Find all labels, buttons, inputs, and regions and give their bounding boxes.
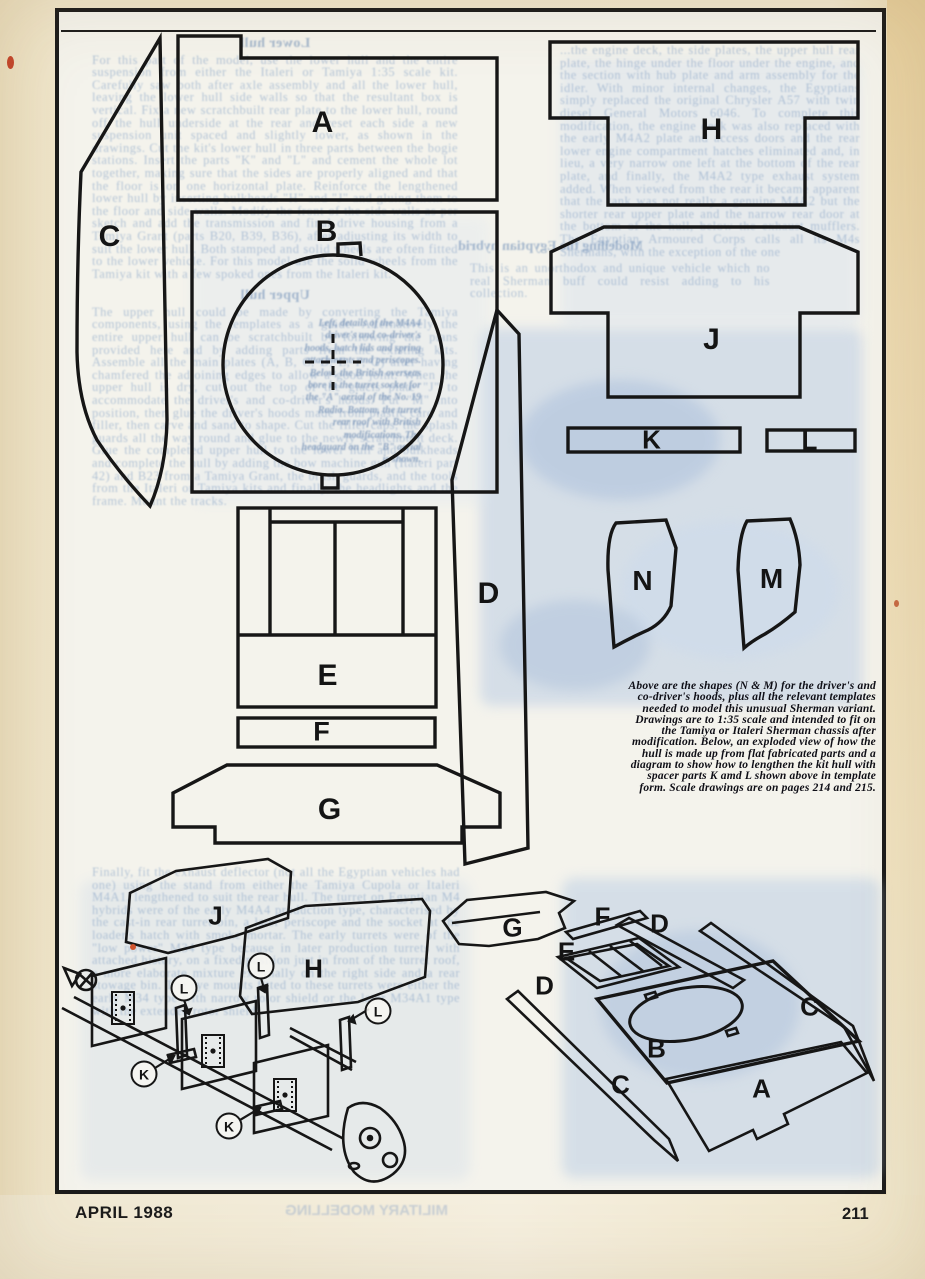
magazine-page: Lower hull For this part of the model, u… — [0, 0, 925, 1279]
diagram-right-label-c2: C — [611, 1070, 631, 1101]
hull-nose-piece — [343, 1103, 405, 1182]
ink-speck — [7, 56, 14, 69]
template-shape-c — [77, 38, 167, 506]
circled-label-l: L — [248, 953, 275, 980]
template-label-k: K — [642, 425, 662, 456]
template-label-c: C — [99, 220, 122, 254]
circled-label-k: K — [216, 1113, 243, 1140]
circled-label-k: K — [131, 1061, 158, 1088]
template-label-e: E — [317, 659, 338, 693]
diagram-left-label-h: H — [304, 954, 324, 985]
template-hatch-circle — [223, 255, 443, 475]
crosshair-icon — [305, 334, 361, 390]
template-label-n: N — [632, 565, 653, 597]
template-shape-a — [178, 36, 497, 200]
diagram-right-label-e: E — [558, 937, 576, 968]
template-shape-f — [238, 718, 435, 747]
bulkhead-3 — [254, 1045, 328, 1133]
template-label-l: L — [802, 426, 819, 457]
diagram-right-label-d: D — [650, 909, 670, 940]
diagram-left-label-j: J — [208, 901, 223, 932]
diagram-right-label-c: C — [800, 992, 820, 1023]
ink-speck — [130, 944, 136, 950]
diagram-right-label-d2: D — [535, 971, 555, 1002]
ink-speck — [894, 600, 899, 607]
diagram-right-label-f: F — [595, 902, 612, 933]
template-label-d: D — [478, 577, 501, 611]
template-label-j: J — [703, 323, 721, 357]
bulkhead-1 — [92, 958, 166, 1046]
template-caption: Above are the shapes (N & M) for the dri… — [624, 681, 876, 794]
floor-rail — [74, 997, 344, 1139]
template-label-f: F — [313, 717, 331, 748]
spacer-slat-l3 — [340, 1017, 351, 1070]
template-label-b: B — [316, 215, 339, 249]
template-label-m: M — [760, 563, 784, 595]
template-label-h: H — [701, 113, 724, 147]
circled-label-l: L — [365, 998, 392, 1025]
diagram-right-label-g: G — [502, 913, 523, 944]
issue-date: APRIL 1988 — [75, 1203, 173, 1223]
page-number: 211 — [842, 1205, 869, 1224]
template-label-a: A — [312, 106, 335, 140]
template-label-g: G — [318, 793, 342, 827]
template-line-art — [0, 0, 925, 1279]
part-c-left — [507, 991, 678, 1161]
diagram-right-label-a: A — [752, 1074, 772, 1105]
circled-label-l: L — [171, 975, 198, 1002]
template-shape-j — [551, 227, 858, 397]
diagram-right-label-b: B — [647, 1034, 667, 1065]
